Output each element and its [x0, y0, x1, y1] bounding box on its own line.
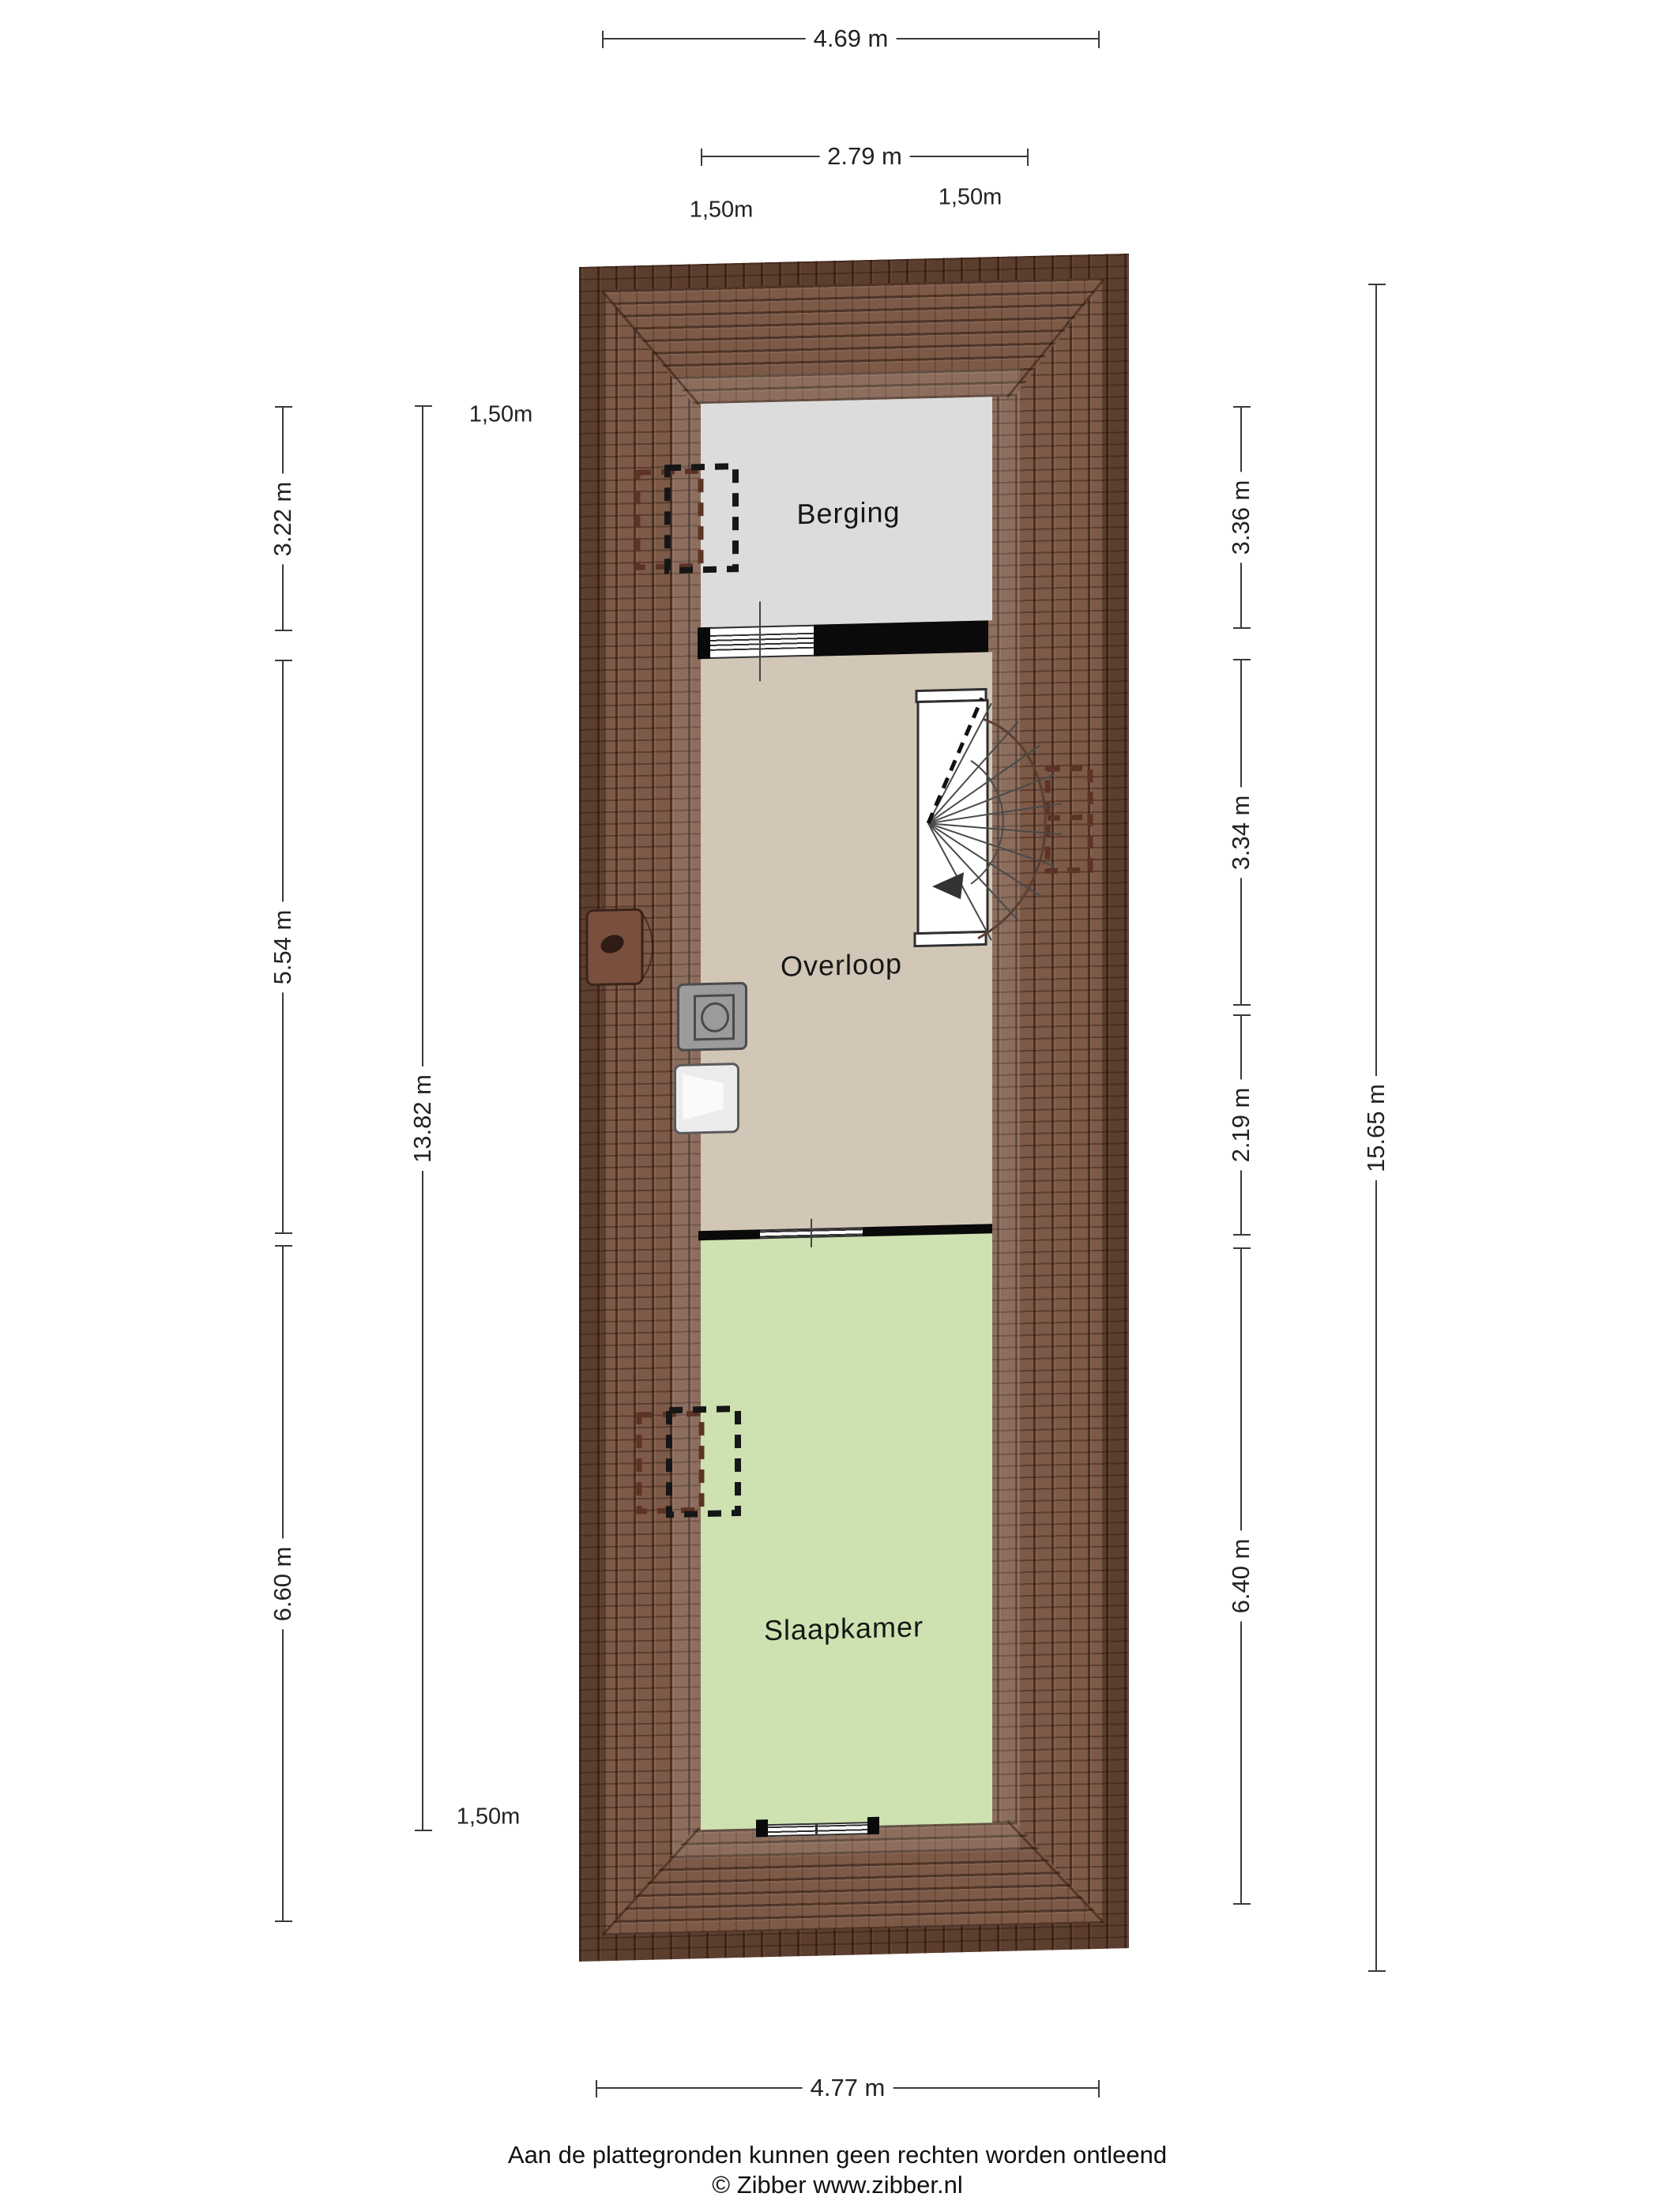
room-label-berging: Berging [796, 495, 900, 531]
toilet-bowl [683, 1074, 724, 1120]
window-post-right [867, 1817, 879, 1834]
dim-left-overloop: 5.54 m [282, 660, 284, 1233]
window-glazing [768, 1824, 867, 1834]
dim-bottom-width: 4.77 m [596, 2087, 1099, 2089]
dim-top-inner-width: 2.79 m [702, 156, 1028, 157]
dim-right-slaapkamer: 6.40 m [1240, 1248, 1242, 1904]
dim-right-overloop-top: 3.34 m [1240, 660, 1242, 1005]
window-glazing [710, 633, 814, 651]
footer-disclaimer: Aan de plattegronden kunnen geen rechten… [508, 2141, 1167, 2169]
window-slaapkamer-south [768, 1822, 867, 1837]
dim-left-slaapkamer: 6.60 m [282, 1246, 284, 1921]
room-label-slaapkamer: Slaapkamer [764, 1610, 924, 1647]
appliance-drum [701, 1002, 729, 1033]
dim-top-right-offset: 1,50m [939, 185, 1003, 211]
wall-berging-overloop-right [814, 620, 988, 656]
boiler-appliance [677, 982, 747, 1051]
floorplan: Berging Overloop Slaapkamer [579, 254, 1129, 1962]
dim-left-top-offset: 1,50m [469, 402, 533, 428]
dim-left-bottom-offset: 1,50m [457, 1804, 521, 1830]
toilet-fixture [674, 1063, 739, 1134]
window-divider [815, 1825, 818, 1834]
floorplan-page: Berging Overloop Slaapkamer 4.69 m 2.79 … [0, 0, 1659, 2212]
window-center-post [759, 601, 761, 681]
window-post-left [756, 1819, 768, 1837]
window-center-post [811, 1219, 812, 1247]
dim-left-total: 13.82 m [422, 406, 423, 1830]
dim-top-left-offset: 1,50m [690, 197, 754, 224]
dim-right-total: 15.65 m [1375, 284, 1377, 1971]
dim-right-overloop-bottom: 2.19 m [1240, 1015, 1242, 1235]
room-overloop [701, 652, 992, 1231]
dim-right-berging: 3.36 m [1240, 407, 1242, 628]
room-label-overloop: Overloop [781, 947, 902, 984]
dim-top-total-width: 4.69 m [603, 38, 1099, 39]
dim-left-berging: 3.22 m [282, 407, 284, 630]
room-slaapkamer [701, 1232, 992, 1830]
footer-copyright: © Zibber www.zibber.nl [712, 2171, 962, 2199]
appliance-panel [694, 994, 735, 1040]
window-berging-overloop [710, 625, 814, 659]
wall-overloop-slaapkamer-left [698, 1229, 760, 1240]
